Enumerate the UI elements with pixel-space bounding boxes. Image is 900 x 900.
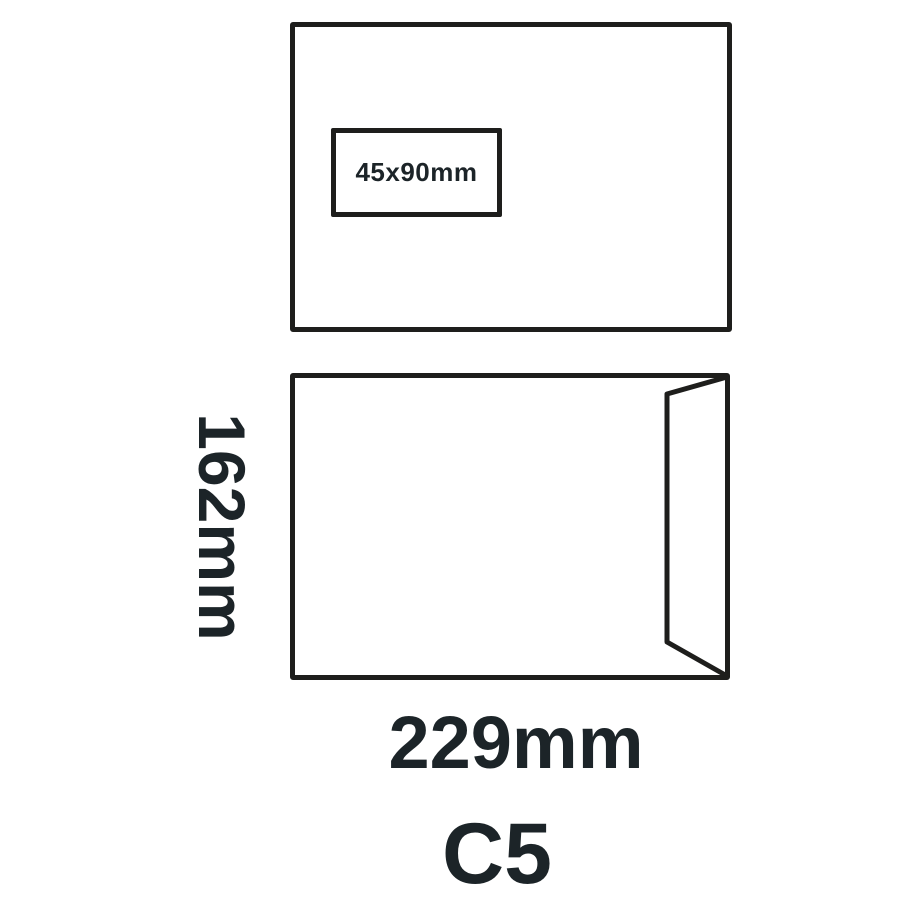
width-dimension-label: 229mm	[296, 700, 736, 785]
envelope-size-title: C5	[277, 805, 717, 900]
window-size-label: 45x90mm	[355, 157, 477, 188]
envelope-diagram: 45x90mm 162mm 229mm C5	[0, 0, 900, 900]
seal-flap-outline	[290, 373, 730, 680]
envelope-back	[290, 373, 730, 680]
address-window: 45x90mm	[331, 128, 502, 217]
envelope-front: 45x90mm	[290, 22, 732, 332]
height-dimension-label: 162mm	[187, 377, 257, 677]
